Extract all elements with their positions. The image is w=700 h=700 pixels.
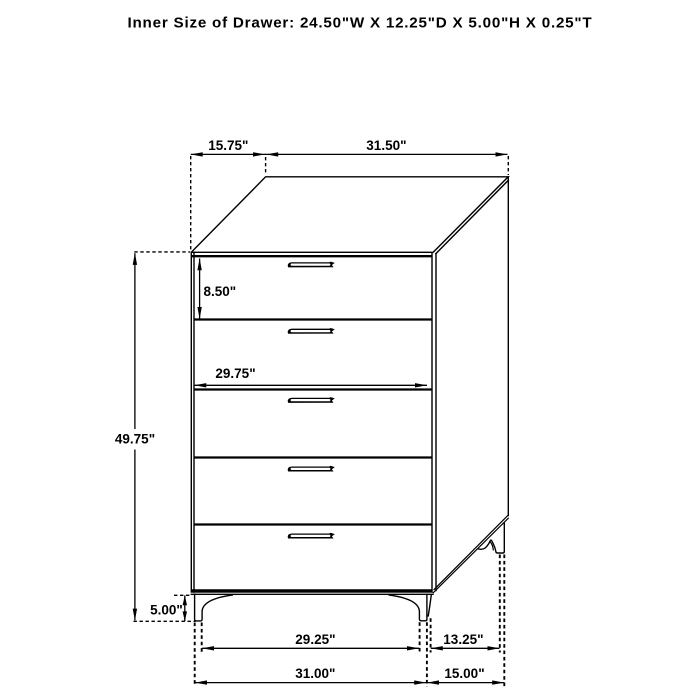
svg-text:29.25": 29.25" <box>295 632 335 647</box>
svg-text:49.75": 49.75" <box>115 431 155 446</box>
svg-text:15.75": 15.75" <box>208 138 248 153</box>
svg-text:15.00": 15.00" <box>444 666 484 681</box>
svg-text:13.25": 13.25" <box>443 632 483 647</box>
svg-text:5.00": 5.00" <box>150 602 183 617</box>
svg-text:31.50": 31.50" <box>366 138 406 153</box>
svg-text:29.75": 29.75" <box>215 366 255 381</box>
svg-text:Inner Size of Drawer: 24.50"W: Inner Size of Drawer: 24.50"W X 12.25"D … <box>128 15 593 32</box>
svg-text:8.50": 8.50" <box>203 284 236 299</box>
svg-text:31.00": 31.00" <box>295 666 335 681</box>
